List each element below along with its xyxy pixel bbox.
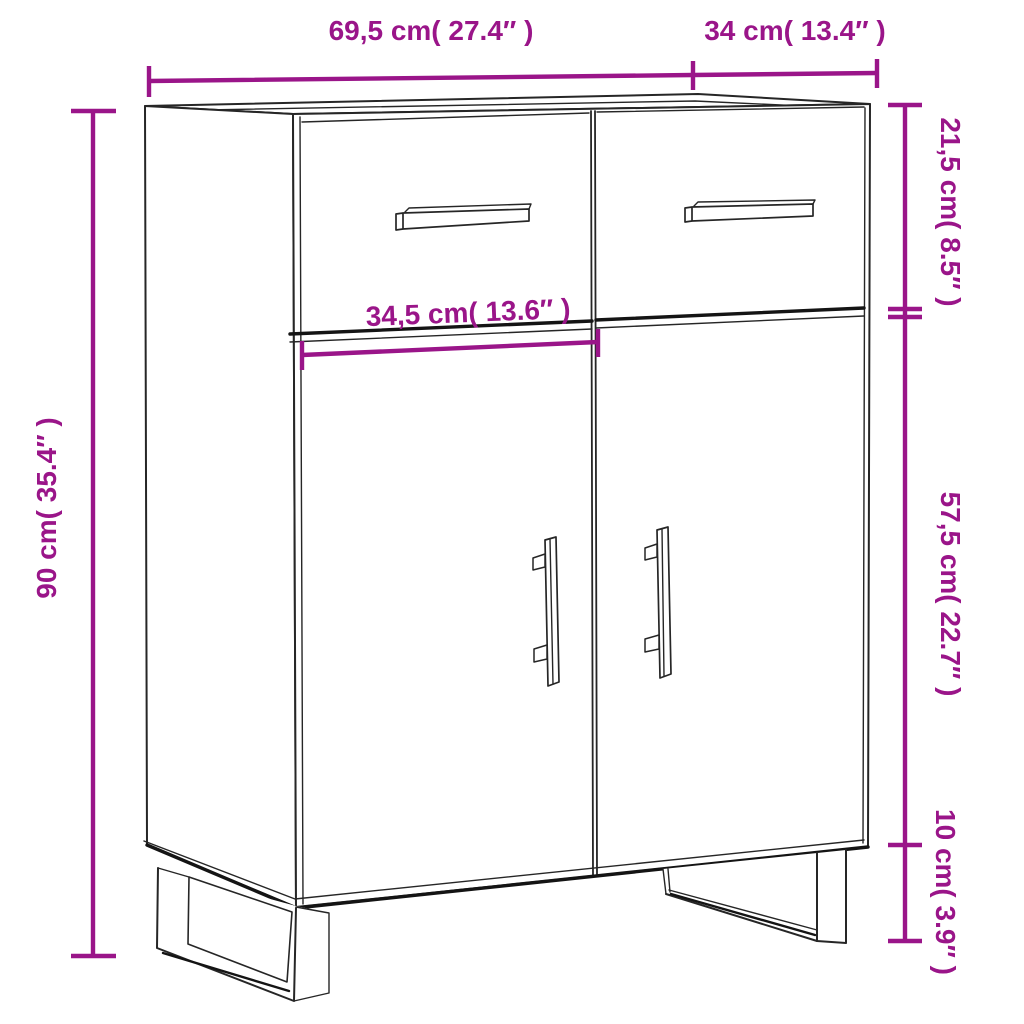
dimension-diagram: 69,5 cm( 27.4″ ) 34 cm( 13.4″ ) 90 cm( 3…	[0, 0, 1024, 1024]
height-dimension-line	[71, 111, 116, 956]
drawer-section-height-label: 21,5 cm( 8.5″ )	[935, 117, 966, 306]
door-section-height-label: 57,5 cm( 22.7″ )	[935, 492, 966, 697]
right-sections-dimension-line	[888, 105, 922, 942]
depth-label: 34 cm( 13.4″ )	[704, 15, 886, 46]
cabinet-drawing	[144, 94, 870, 1001]
front-panel	[293, 104, 870, 907]
width-depth-dimension-line	[149, 59, 877, 97]
height-label: 90 cm( 35.4″ )	[31, 417, 62, 599]
side-panel	[145, 106, 296, 907]
product-dimension-image: 69,5 cm( 27.4″ ) 34 cm( 13.4″ ) 90 cm( 3…	[0, 0, 1024, 1024]
leg-height-label: 10 cm( 3.9″ )	[930, 809, 961, 975]
width-label: 69,5 cm( 27.4″ )	[329, 15, 534, 46]
